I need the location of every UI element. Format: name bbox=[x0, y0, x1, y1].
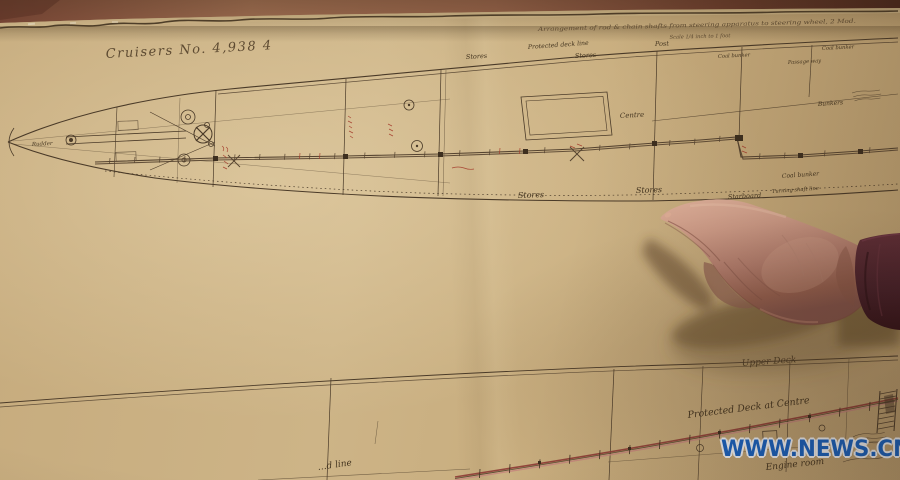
label-protected-deck-at-centre: Protected Deck at Centre bbox=[686, 395, 811, 421]
shaft-fittings bbox=[213, 135, 863, 161]
news-photo-of-cruiser-blueprint: Cruisers No. 4,938 4 Arrangement of rod … bbox=[0, 0, 900, 480]
section-lines bbox=[114, 45, 812, 200]
label-post: Post bbox=[654, 40, 670, 49]
label-bunkers: Bunkers bbox=[817, 99, 844, 108]
hatches bbox=[404, 92, 612, 152]
label-passage-way: Passage way bbox=[787, 58, 822, 66]
label-starboard: Starboard bbox=[728, 191, 762, 201]
label-line-fragment: …d line bbox=[317, 458, 353, 473]
label-centre: Centre bbox=[620, 111, 645, 120]
label-stores-upper-left: Stores bbox=[466, 52, 488, 61]
label-stores-upper-right: Stores bbox=[575, 51, 597, 60]
plan-drawing bbox=[8, 38, 898, 201]
hull-outline bbox=[8, 38, 898, 201]
margin-note-scribble bbox=[852, 90, 882, 101]
label-rudder: Rudder bbox=[31, 141, 53, 148]
label-stores-lower-left: Stores bbox=[518, 190, 544, 200]
label-coal-bunker-top: Coal bunker bbox=[718, 52, 751, 60]
label-coal-bunker-lower: Coal bunker bbox=[782, 170, 821, 180]
label-stores-lower-right: Stores bbox=[636, 185, 662, 195]
hand bbox=[661, 199, 862, 324]
label-coal-bunker-right: Coal bunker bbox=[822, 44, 855, 52]
section-cut-hatching bbox=[877, 389, 897, 433]
photo-canvas: Cruisers No. 4,938 4 Arrangement of rod … bbox=[0, 0, 900, 480]
label-turning-shaft-line: Turning shaft line bbox=[772, 186, 819, 195]
watermark: WWW.NEWS.CN bbox=[721, 437, 900, 462]
